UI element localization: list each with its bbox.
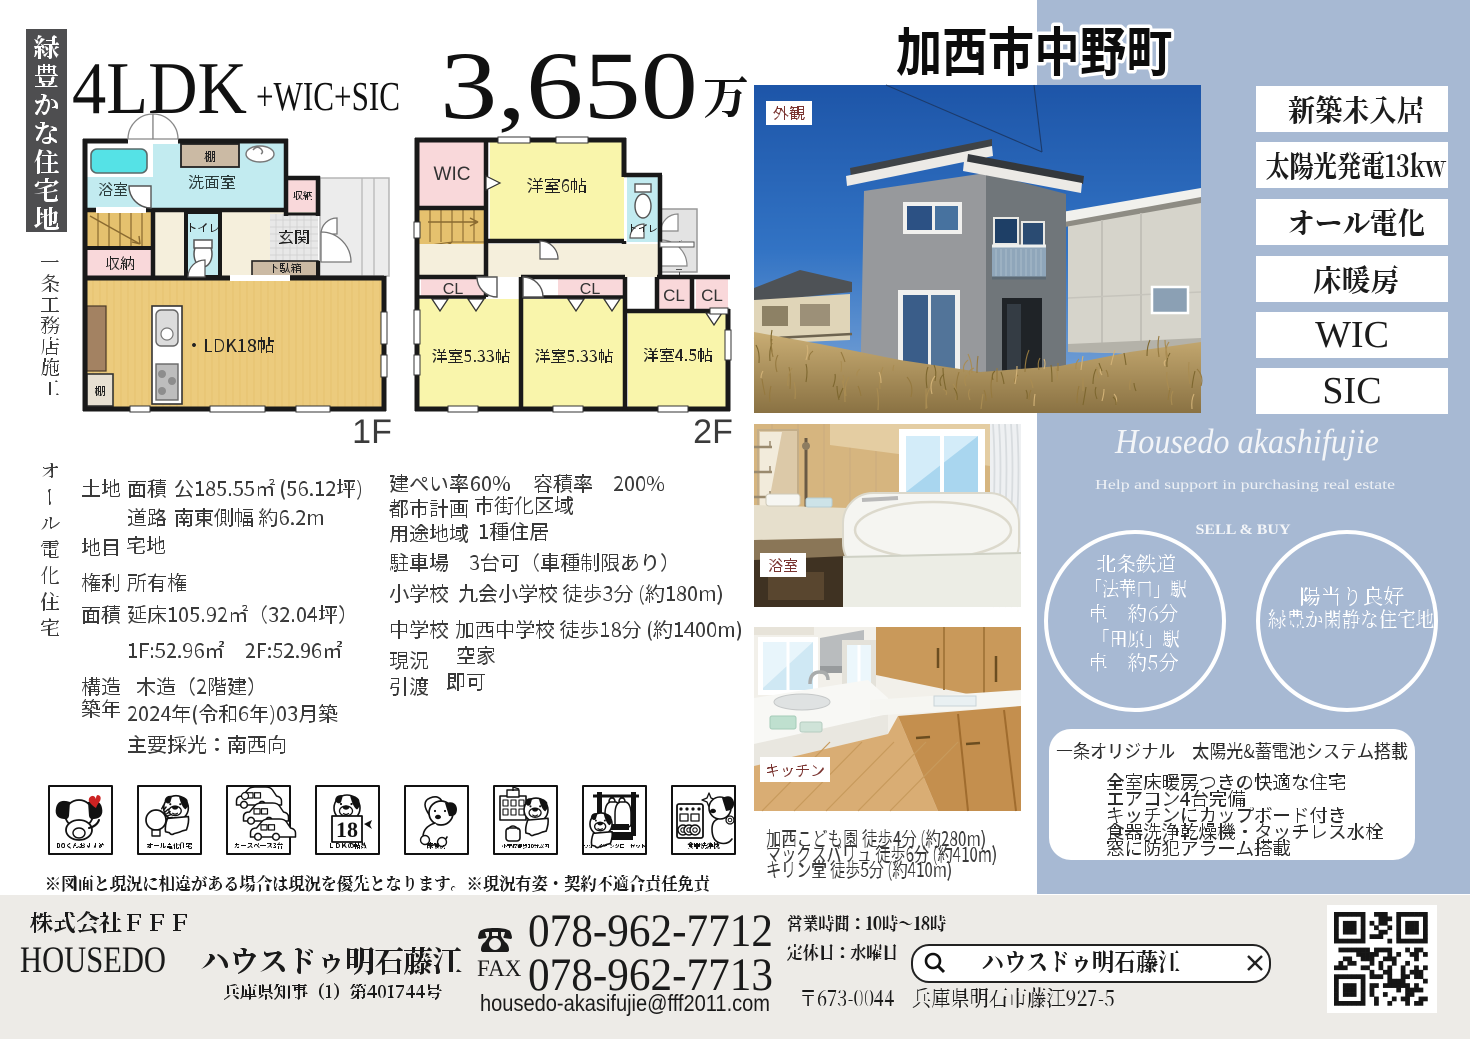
svg-text:housedo-akasifujie@fff2011.com: housedo-akasifujie@fff2011.com (480, 990, 770, 1016)
svg-text:SELL & BUY: SELL & BUY (1196, 522, 1291, 538)
svg-text:1F: 1F (352, 413, 392, 451)
svg-text:3,650: 3,650 (440, 32, 698, 139)
svg-text:Housedo akashifujie: Housedo akashifujie (1114, 422, 1379, 461)
svg-text:18: 18 (336, 817, 358, 842)
svg-text:2F: 2F (693, 413, 733, 451)
svg-text:FAX: FAX (477, 956, 522, 981)
svg-text:CL: CL (701, 286, 723, 305)
svg-text:CL: CL (443, 281, 464, 298)
svg-text:SIC: SIC (1322, 370, 1381, 412)
svg-text:WIC: WIC (434, 164, 471, 185)
svg-text:WIC: WIC (1315, 314, 1389, 356)
svg-text:CL: CL (663, 286, 685, 305)
svg-text:Help and support in purchasing: Help and support in purchasing real esta… (1095, 478, 1395, 493)
svg-text:+WIC+SIC: +WIC+SIC (256, 73, 400, 119)
svg-text:CL: CL (580, 281, 601, 298)
svg-text:HOUSEDO: HOUSEDO (20, 940, 166, 981)
